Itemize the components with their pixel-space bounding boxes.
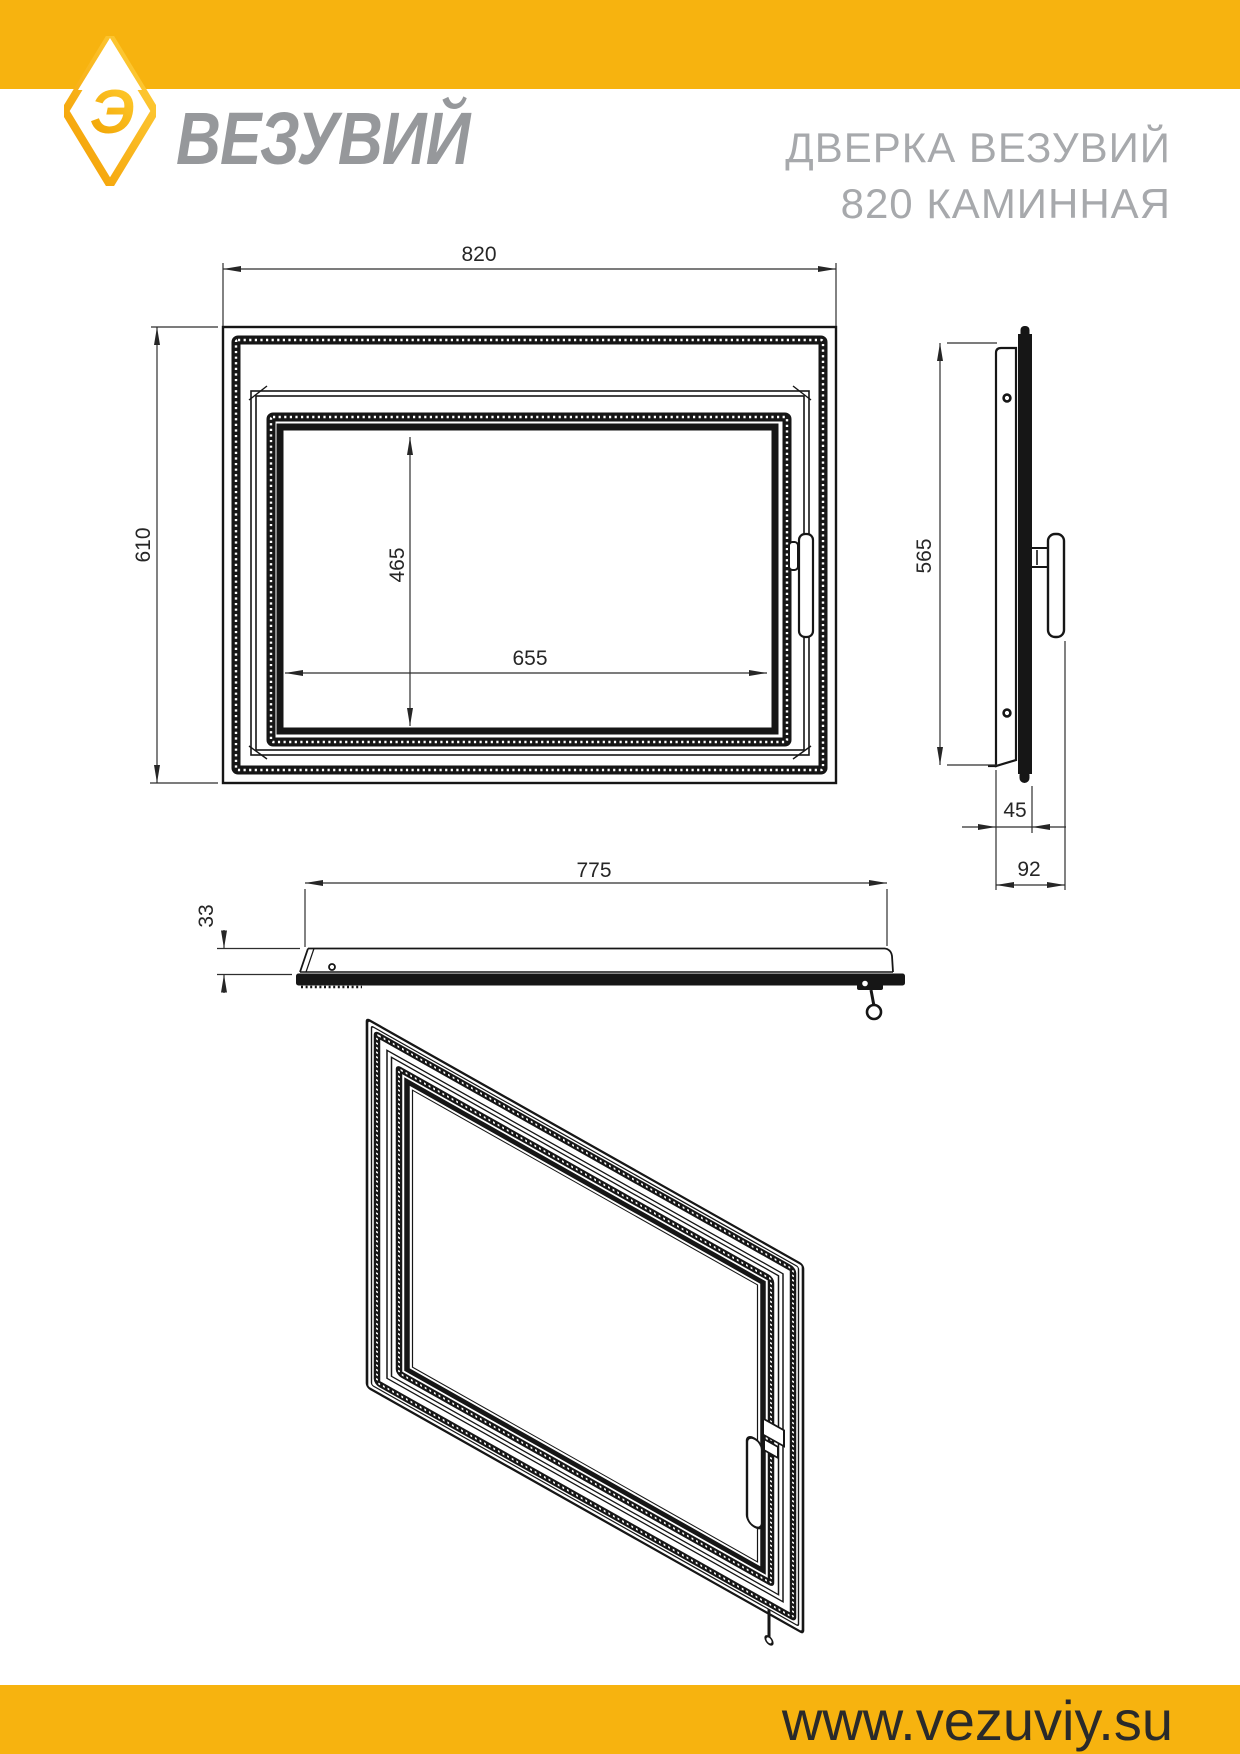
dim-label-92: 92 — [1017, 858, 1040, 881]
front-view-drawing — [223, 327, 836, 783]
dim-label-33: 33 — [195, 904, 218, 927]
side-view-drawing — [988, 326, 1064, 783]
website-url: www.vezuviy.su — [782, 1691, 1173, 1749]
dim-label-465: 465 — [386, 547, 409, 582]
dim-label-610: 610 — [132, 527, 155, 562]
front-handle — [799, 534, 813, 637]
perspective-view-drawing — [367, 1019, 803, 1663]
dim-label-655: 655 — [512, 647, 547, 670]
perspective-handle — [747, 1434, 762, 1530]
dim-label-820: 820 — [461, 243, 496, 266]
dim-label-565: 565 — [913, 538, 936, 573]
technical-drawing: 820 610 465 655 565 45 92 — [0, 0, 1240, 1754]
footer-brand-band: www.vezuviy.su — [0, 1685, 1240, 1754]
side-handle — [1048, 534, 1064, 637]
front-latch — [789, 542, 798, 570]
side-handle-bracket — [1031, 548, 1049, 567]
top-latch-knob — [867, 1005, 881, 1019]
top-view-drawing — [296, 949, 905, 1020]
dim-label-45: 45 — [1003, 799, 1026, 822]
dim-label-775: 775 — [576, 859, 611, 882]
